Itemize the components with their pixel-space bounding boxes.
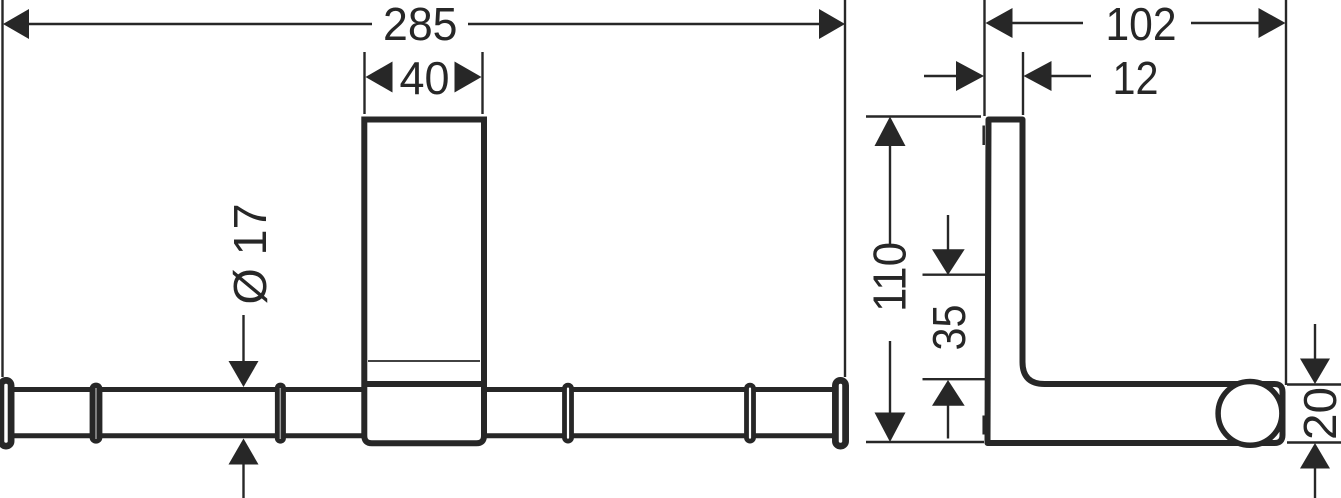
svg-text:20: 20	[1294, 387, 1341, 440]
svg-text:12: 12	[1113, 52, 1159, 104]
svg-text:40: 40	[400, 52, 450, 104]
svg-text:Ø 17: Ø 17	[224, 204, 276, 305]
svg-text:102: 102	[1106, 0, 1177, 50]
svg-text:285: 285	[383, 0, 458, 50]
svg-text:110: 110	[864, 242, 916, 312]
svg-text:35: 35	[923, 305, 975, 351]
